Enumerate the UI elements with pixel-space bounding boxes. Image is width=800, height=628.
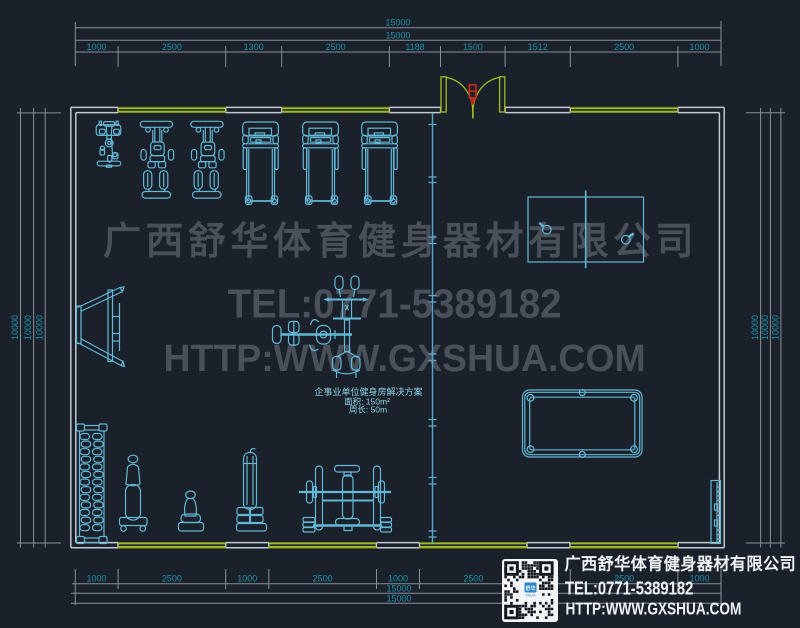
svg-text:15000: 15000 [385, 30, 410, 40]
svg-text:10000: 10000 [750, 315, 760, 340]
svg-text:1000: 1000 [689, 42, 709, 52]
svg-text:1000: 1000 [86, 42, 106, 52]
svg-text:15000: 15000 [386, 584, 411, 594]
svg-text:1000: 1000 [237, 574, 257, 584]
svg-text:2500: 2500 [326, 42, 346, 52]
svg-text:2500: 2500 [614, 42, 634, 52]
svg-text:1300: 1300 [244, 42, 264, 52]
svg-text:10000: 10000 [23, 315, 33, 340]
svg-text:10000: 10000 [10, 315, 20, 340]
svg-text:TEL:0771-5389182: TEL:0771-5389182 [228, 281, 562, 326]
svg-text:1512: 1512 [528, 42, 548, 52]
svg-text:周长: 50m: 周长: 50m [349, 405, 387, 415]
svg-text:15000: 15000 [386, 594, 411, 604]
svg-text:1188: 1188 [405, 42, 424, 52]
svg-text:舒华: 舒华 [524, 585, 535, 592]
svg-text:1000: 1000 [86, 574, 106, 584]
svg-text:企事业单位健身房解决方案: 企事业单位健身房解决方案 [314, 386, 422, 397]
svg-text:HTTP:WWW.GXSHUA.COM: HTTP:WWW.GXSHUA.COM [164, 337, 646, 379]
svg-text:TEL:0771-5389182: TEL:0771-5389182 [565, 578, 693, 599]
svg-text:1000: 1000 [388, 574, 408, 584]
svg-text:广西舒华体育健身器材有限公司: 广西舒华体育健身器材有限公司 [103, 221, 698, 263]
svg-text:1500: 1500 [463, 42, 483, 52]
svg-text:10000: 10000 [770, 315, 780, 340]
svg-text:2500: 2500 [463, 574, 483, 584]
svg-text:10000: 10000 [35, 315, 45, 340]
svg-text:15000: 15000 [385, 18, 410, 28]
svg-text:HTTP:WWW.GXSHUA.COM: HTTP:WWW.GXSHUA.COM [566, 600, 742, 619]
svg-text:2500: 2500 [313, 574, 333, 584]
svg-text:2500: 2500 [162, 42, 182, 52]
svg-text:广西舒华体育健身器材有限公司: 广西舒华体育健身器材有限公司 [565, 555, 797, 574]
svg-text:SHUA: SHUA [526, 594, 537, 598]
svg-text:10000: 10000 [760, 315, 770, 340]
svg-text:2500: 2500 [162, 574, 182, 584]
